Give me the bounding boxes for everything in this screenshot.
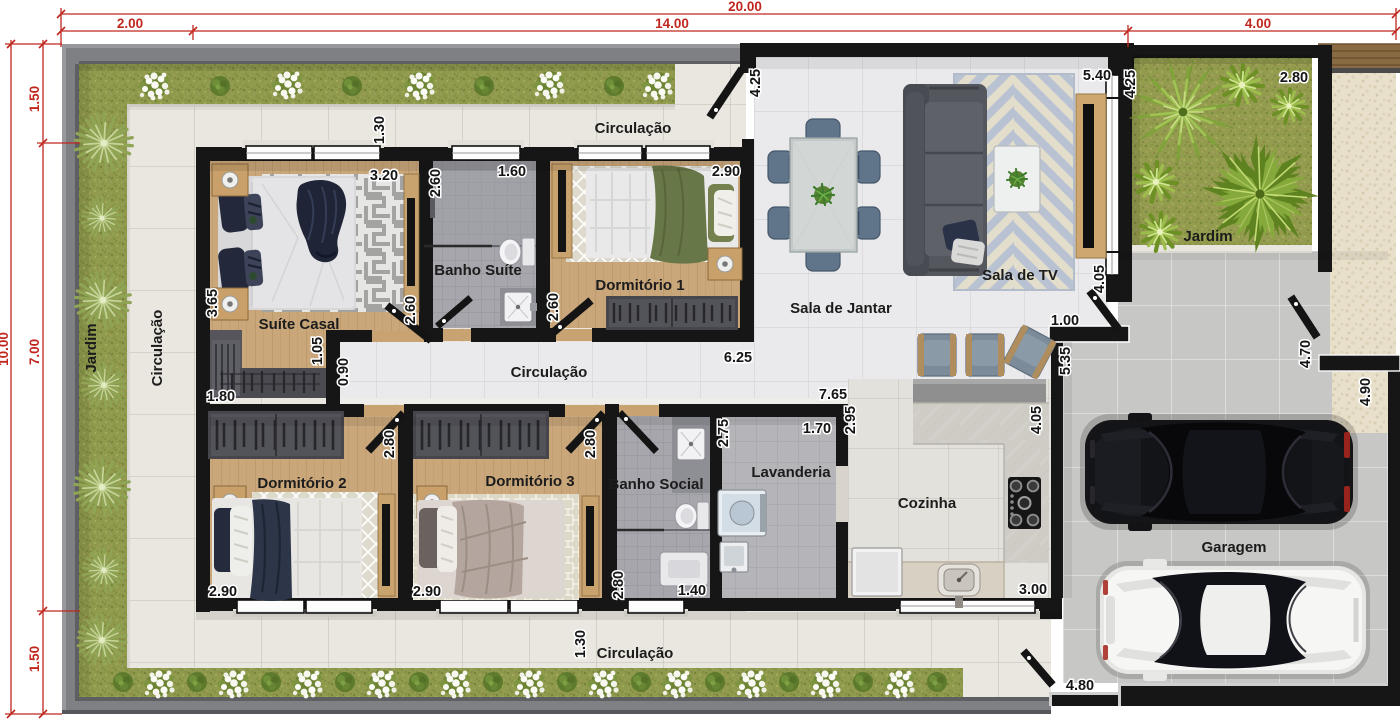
svg-text:4.25: 4.25: [748, 69, 764, 97]
svg-text:2.90: 2.90: [413, 584, 441, 600]
svg-text:20.00: 20.00: [728, 0, 762, 14]
svg-text:3.65: 3.65: [205, 289, 221, 317]
svg-text:7.65: 7.65: [819, 387, 847, 403]
svg-text:1.50: 1.50: [27, 646, 42, 672]
svg-text:Circulação: Circulação: [597, 645, 674, 662]
svg-text:1.40: 1.40: [678, 583, 706, 599]
svg-text:2.75: 2.75: [716, 419, 732, 447]
svg-text:Dormitório 2: Dormitório 2: [257, 475, 346, 492]
svg-text:Cozinha: Cozinha: [898, 495, 957, 512]
svg-text:7.00: 7.00: [27, 339, 42, 365]
svg-text:1.50: 1.50: [27, 86, 42, 112]
svg-text:Jardim: Jardim: [1183, 228, 1232, 245]
svg-text:6.25: 6.25: [724, 350, 752, 366]
svg-text:2.60: 2.60: [428, 169, 444, 197]
svg-text:Sala de TV: Sala de TV: [982, 267, 1058, 284]
svg-text:1.30: 1.30: [372, 116, 388, 144]
svg-text:3.20: 3.20: [370, 168, 398, 184]
svg-text:1.00: 1.00: [1051, 313, 1079, 329]
svg-text:Banho Suíte: Banho Suíte: [434, 262, 522, 279]
svg-text:2.80: 2.80: [1280, 70, 1308, 86]
svg-text:1.05: 1.05: [310, 337, 326, 365]
svg-text:2.80: 2.80: [611, 571, 627, 599]
svg-text:4.70: 4.70: [1298, 340, 1314, 368]
svg-text:4.25: 4.25: [1123, 70, 1139, 98]
svg-text:1.70: 1.70: [803, 421, 831, 437]
svg-text:Sala de Jantar: Sala de Jantar: [790, 300, 892, 317]
svg-text:Garagem: Garagem: [1201, 539, 1266, 556]
svg-text:4.00: 4.00: [1245, 16, 1271, 31]
svg-text:Jardim: Jardim: [83, 323, 100, 372]
svg-text:Banho Social: Banho Social: [608, 476, 703, 493]
svg-text:2.80: 2.80: [583, 430, 599, 458]
svg-text:2.60: 2.60: [403, 296, 419, 324]
svg-text:4.05: 4.05: [1092, 265, 1108, 293]
svg-text:1.80: 1.80: [207, 389, 235, 405]
svg-text:2.90: 2.90: [209, 584, 237, 600]
svg-text:4.90: 4.90: [1358, 378, 1374, 406]
svg-text:1.30: 1.30: [573, 630, 589, 658]
svg-text:Dormitório 1: Dormitório 1: [595, 277, 684, 294]
svg-text:2.00: 2.00: [117, 16, 143, 31]
svg-text:14.00: 14.00: [655, 16, 689, 31]
svg-text:Circulação: Circulação: [595, 120, 672, 137]
svg-text:Circulação: Circulação: [149, 310, 166, 387]
svg-text:5.40: 5.40: [1083, 68, 1111, 84]
svg-text:Lavanderia: Lavanderia: [751, 464, 831, 481]
svg-text:Dormitório 3: Dormitório 3: [485, 473, 574, 490]
svg-text:2.90: 2.90: [712, 164, 740, 180]
svg-text:Suíte Casal: Suíte Casal: [259, 316, 340, 333]
svg-text:1.60: 1.60: [498, 164, 526, 180]
svg-text:0.90: 0.90: [336, 358, 352, 386]
svg-text:Circulação: Circulação: [511, 364, 588, 381]
svg-text:4.80: 4.80: [1066, 678, 1094, 694]
svg-text:10.00: 10.00: [0, 332, 11, 366]
svg-text:2.60: 2.60: [546, 293, 562, 321]
svg-text:2.80: 2.80: [382, 430, 398, 458]
svg-text:3.00: 3.00: [1019, 582, 1047, 598]
svg-text:5.35: 5.35: [1058, 347, 1074, 375]
svg-text:4.05: 4.05: [1029, 406, 1045, 434]
svg-text:2.95: 2.95: [843, 406, 859, 434]
